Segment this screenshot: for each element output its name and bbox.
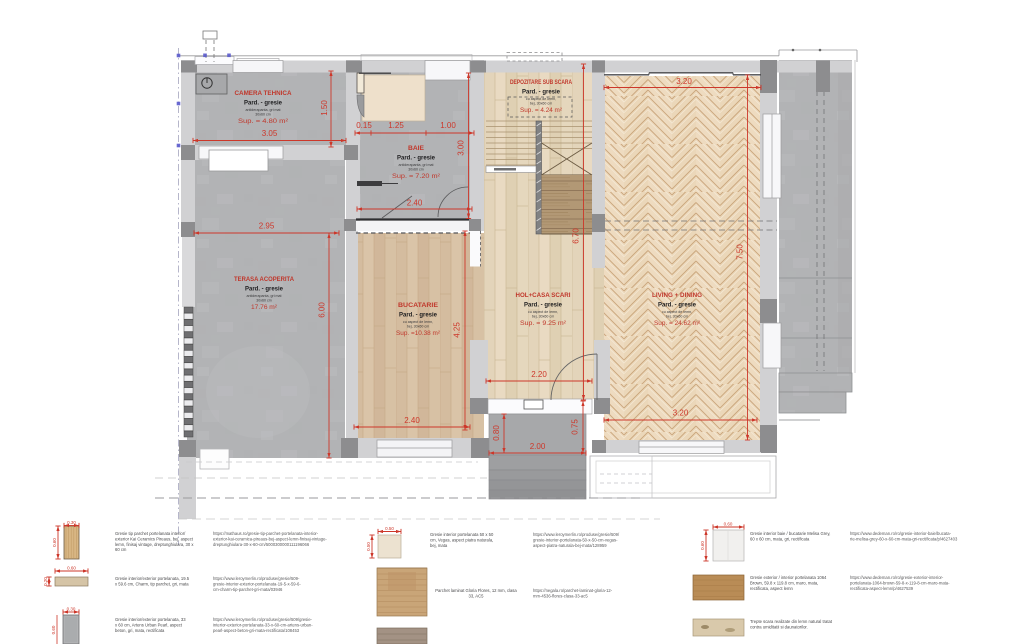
svg-text:Sup. = 7.20 m²: Sup. = 7.20 m² xyxy=(392,174,440,180)
svg-text:30x60 cm: 30x60 cm xyxy=(256,299,272,303)
svg-text:antiderapanta, gri mat: antiderapanta, gri mat xyxy=(246,108,281,112)
svg-text:0.60: 0.60 xyxy=(51,625,56,634)
svg-text:bej, mata: bej, mata xyxy=(430,543,448,548)
svg-text:pearl-aspect-beton-gri-mata-re: pearl-aspect-beton-gri-mata-rectificata/… xyxy=(213,628,300,633)
svg-text:0.80: 0.80 xyxy=(492,425,501,441)
svg-text:Sup. = 4.24 m²: Sup. = 4.24 m² xyxy=(520,108,562,114)
svg-text:3.20: 3.20 xyxy=(676,77,692,86)
svg-text:Gresie interior portelanata 50: Gresie interior portelanata 50 x 50 xyxy=(430,532,494,537)
svg-text:BAIE: BAIE xyxy=(408,145,425,152)
svg-text:https://www.dedeman.ro/ro/gres: https://www.dedeman.ro/ro/gresie-interio… xyxy=(850,531,952,536)
svg-text:CAMERA TEHNICA: CAMERA TEHNICA xyxy=(235,90,292,97)
svg-text:cu aspect de lemn,: cu aspect de lemn, xyxy=(662,310,692,314)
svg-text:0.60: 0.60 xyxy=(700,541,705,550)
svg-text:0.30: 0.30 xyxy=(67,607,76,612)
svg-text:dreptunghiulara-30-x-60-cm/500: dreptunghiulara-30-x-60-cm/5000300000111… xyxy=(213,542,310,547)
svg-text:17.76 m²: 17.76 m² xyxy=(251,305,277,311)
svg-text:bej, 30x60 cm: bej, 30x60 cm xyxy=(407,325,429,329)
svg-text:6.00: 6.00 xyxy=(318,302,327,318)
svg-text:0.50: 0.50 xyxy=(385,526,394,531)
svg-text:https://negala.ro/parchet-lami: https://negala.ro/parchet-laminat-gloria… xyxy=(533,588,613,593)
svg-text:Brown, 59.8 x 119.8 cm, maro,: Brown, 59.8 x 119.8 cm, maro, mata, xyxy=(750,580,818,585)
svg-text:Gresie interior/exterior porte: Gresie interior/exterior portelanata, 33 xyxy=(115,617,186,622)
svg-text:antiderapanta, gri mat: antiderapanta, gri mat xyxy=(247,294,282,298)
svg-text:bej, 30x60 cm: bej, 30x60 cm xyxy=(666,315,688,319)
svg-text:cm-charm-tip-parchet-gri-mata/: cm-charm-tip-parchet-gri-mata/03946 xyxy=(213,587,283,592)
svg-text:cu aspect de lemn,: cu aspect de lemn, xyxy=(528,310,558,314)
svg-text:3.20: 3.20 xyxy=(673,409,689,418)
svg-text:https://www.leroymerlin.ro/pro: https://www.leroymerlin.ro/produse/gresi… xyxy=(213,617,313,622)
svg-text:DEPOZITARE SUB SCARA: DEPOZITARE SUB SCARA xyxy=(510,79,572,86)
svg-text:https://mathaus.ro/gresie-tip-: https://mathaus.ro/gresie-tip-parchet-po… xyxy=(213,531,319,536)
svg-text:1.25: 1.25 xyxy=(388,121,404,130)
svg-text:mm-4536-flores-clasa-33-ac5: mm-4536-flores-clasa-33-ac5 xyxy=(533,593,588,598)
svg-text:exterior-kai-ceramica-pireaus-: exterior-kai-ceramica-pireaus-bej-aspect… xyxy=(213,536,327,541)
svg-text:exterior Kai Ceramics Pireaus,: exterior Kai Ceramics Pireaus, bej, aspe… xyxy=(115,536,194,541)
svg-text:cu aspect de lemn,: cu aspect de lemn, xyxy=(526,97,556,101)
svg-text:portelanata-1064-brown-59-8-x-: portelanata-1064-brown-59-8-x-119-8-cm-m… xyxy=(850,580,950,585)
svg-text:cu aspect de lemn,: cu aspect de lemn, xyxy=(403,320,433,324)
svg-text:Parchet laminat Gloria Flores,: Parchet laminat Gloria Flores, 12 mm, cl… xyxy=(435,588,517,593)
svg-text:0.30: 0.30 xyxy=(67,520,76,525)
svg-text:0.75: 0.75 xyxy=(571,419,580,435)
svg-text:4.25: 4.25 xyxy=(453,322,462,338)
svg-text:30x60 cm: 30x60 cm xyxy=(255,113,271,117)
svg-text:Gresie interior/exterior porte: Gresie interior/exterior portelanata, 19… xyxy=(115,576,190,581)
svg-text:2.20: 2.20 xyxy=(531,370,547,379)
svg-text:1.00: 1.00 xyxy=(440,121,456,130)
svg-text:Trepte scara realizate din lem: Trepte scara realizate din lemn natural … xyxy=(750,619,833,624)
svg-text:0.60: 0.60 xyxy=(52,538,57,547)
svg-text:Pard. - gresie: Pard. - gresie xyxy=(522,89,561,96)
svg-text:0.20: 0.20 xyxy=(43,577,48,586)
svg-text:Pard. - gresie: Pard. - gresie xyxy=(244,100,283,107)
svg-text:contra umiditatii si daunatori: contra umiditatii si daunatorilor. xyxy=(750,624,808,629)
svg-text:TERASA ACOPERITA: TERASA ACOPERITA xyxy=(234,276,294,283)
svg-text:Gresie interior baie / bucatar: Gresie interior baie / bucatarie Melisa … xyxy=(750,531,831,536)
svg-text:bej, 30x60 cm: bej, 30x60 cm xyxy=(532,315,554,319)
svg-text:3.00: 3.00 xyxy=(457,140,466,156)
svg-text:Gresie exterior / interior por: Gresie exterior / interior portelanata 1… xyxy=(750,575,827,580)
svg-text:Pard. - gresie: Pard. - gresie xyxy=(524,302,563,309)
svg-text:BUCATARIE: BUCATARIE xyxy=(398,302,439,309)
svg-text:6.70: 6.70 xyxy=(572,228,581,244)
svg-text:2.95: 2.95 xyxy=(259,222,275,231)
svg-text:beton, gri, mata, rectificata: beton, gri, mata, rectificata xyxy=(115,628,165,633)
svg-text:0.50: 0.50 xyxy=(366,542,371,551)
svg-text:rectificata, aspect lemn: rectificata, aspect lemn xyxy=(750,586,793,591)
svg-text:x 60 cm, Artens Urban Pearl, a: x 60 cm, Artens Urban Pearl, aspect xyxy=(115,622,183,627)
svg-text:cm, Vegas, aspect piatra natur: cm, Vegas, aspect piatra naturala, xyxy=(430,537,493,542)
svg-text:Sup. =10.38 m²: Sup. =10.38 m² xyxy=(396,331,440,337)
svg-text:30x60 cm: 30x60 cm xyxy=(408,168,424,172)
svg-text:33, AC5: 33, AC5 xyxy=(469,593,485,598)
svg-text:3.05: 3.05 xyxy=(262,129,278,138)
svg-text:Gresie tip parchet portelanata: Gresie tip parchet portelanata interior/ xyxy=(115,531,186,536)
svg-text:rectificata-aspect-lemn/p/4627: rectificata-aspect-lemn/p/4627539 xyxy=(850,586,914,591)
svg-text:Sup. = 24.62 m²: Sup. = 24.62 m² xyxy=(654,321,700,327)
svg-text:Pard. - gresie: Pard. - gresie xyxy=(245,286,284,293)
svg-text:HOL+CASA SCARI: HOL+CASA SCARI xyxy=(516,292,571,299)
svg-text:gresie-interior-exterior-porte: gresie-interior-exterior-portelanata-19-… xyxy=(213,581,301,586)
svg-text:antiderapanta, gri mat: antiderapanta, gri mat xyxy=(399,163,434,167)
svg-text:1.50: 1.50 xyxy=(320,100,329,116)
svg-text:LIVING + DINING: LIVING + DINING xyxy=(652,292,702,299)
svg-text:0.60: 0.60 xyxy=(724,522,733,527)
svg-text:Sup. = 4.80 m²: Sup. = 4.80 m² xyxy=(238,119,288,125)
svg-text:x 59.6 cm, Charm, tip parchet,: x 59.6 cm, Charm, tip parchet, gri, mata xyxy=(115,581,189,586)
svg-text:2.00: 2.00 xyxy=(530,442,546,451)
svg-text:0.60: 0.60 xyxy=(67,566,76,571)
svg-text:2.40: 2.40 xyxy=(407,199,423,208)
svg-text:2.40: 2.40 xyxy=(404,416,420,425)
svg-text:lemn, finisaj vintage, dreptun: lemn, finisaj vintage, dreptunghiulara, … xyxy=(115,542,194,547)
svg-text:https://www.leroymerlin.ro/pro: https://www.leroymerlin.ro/produse/gresi… xyxy=(533,532,620,537)
svg-text:60 x 60 cm, mata, gri, rectifi: 60 x 60 cm, mata, gri, rectificata xyxy=(750,536,810,541)
svg-text:gresie-interior-portelanata-50: gresie-interior-portelanata-50-x-50-cm-v… xyxy=(533,537,618,542)
svg-text:interior-exterior-portelanata-: interior-exterior-portelanata-33-x-60-cm… xyxy=(213,622,313,627)
svg-text:60 cm: 60 cm xyxy=(115,547,127,552)
svg-text:Sup. = 9.25 m²: Sup. = 9.25 m² xyxy=(520,321,566,327)
svg-text:0.15: 0.15 xyxy=(356,121,372,130)
svg-text:Pard. - gresie: Pard. - gresie xyxy=(397,155,436,162)
svg-text:https://www.dedeman.ro/ro/gres: https://www.dedeman.ro/ro/gresie-exterio… xyxy=(850,575,944,580)
svg-text:Pard. - gresie: Pard. - gresie xyxy=(399,312,438,319)
svg-text:https://www.leroymerlin.ro/pro: https://www.leroymerlin.ro/produse/gresi… xyxy=(213,576,300,581)
svg-text:Pard. - gresie: Pard. - gresie xyxy=(658,302,697,309)
svg-text:rie-melisa-grey-60-x-60-cm-mat: rie-melisa-grey-60-x-60-cm-mata-gri-rect… xyxy=(850,536,958,541)
svg-text:bej, 30x60 cm: bej, 30x60 cm xyxy=(530,102,552,106)
svg-text:aspect-piatra-naturala-bej-mat: aspect-piatra-naturala-bej-mata/128959 xyxy=(533,543,607,548)
svg-text:7.50: 7.50 xyxy=(736,244,745,260)
